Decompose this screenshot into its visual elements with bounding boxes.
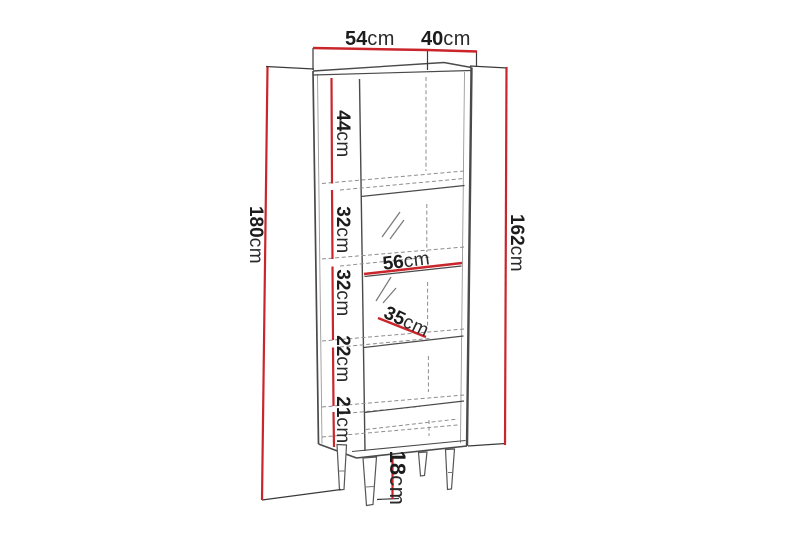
shelf-1-hidden-edges [322,171,464,190]
leg-front-right [446,449,455,490]
cabinet-inner-left-upright [360,79,366,451]
label-top-width-unit: cm [367,28,395,50]
label-compartment-4: 22cm [332,335,353,382]
label-overall-height-num: 180 [245,206,266,238]
cabinet-right-inner-edge [461,72,465,443]
label-compartment-2: 32cm [332,206,353,253]
label-leg-height-num: 18 [385,451,410,475]
label-body-height-unit: cm [506,246,527,272]
ext-body-top [470,66,508,68]
cabinet-right-edge [467,68,472,447]
glass-mark-upper-icon [382,212,404,239]
label-leg-height: 18cm [385,451,410,506]
label-overall-height: 180cm [245,206,266,264]
label-inner-width-unit: cm [402,248,431,272]
label-compartment-2-unit: cm [332,227,353,253]
cabinet-left-edge [313,71,319,444]
cabinet-top-front-edge [314,71,472,76]
label-compartment-1: 44cm [332,110,353,157]
label-compartment-5: 21cm [332,396,353,443]
label-inner-width: 56cm [381,248,431,275]
shelf-4-front-edge [364,401,464,413]
label-compartment-5-unit: cm [332,417,353,443]
dimension-labels: 54cm 40cm 180cm 162cm 44cm 32cm 32cm 22c… [245,28,527,505]
ext-height-bottom [262,490,341,501]
shelf-1-front-edge [361,186,465,197]
cabinet-diagram-svg: 54cm 40cm 180cm 162cm 44cm 32cm 32cm 22c… [0,0,800,533]
label-body-height-num: 162 [506,214,527,246]
cabinet-top-back-edge [313,63,472,72]
label-top-width: 54cm [345,28,395,50]
label-compartment-5-num: 21 [332,396,353,418]
label-overall-height-unit: cm [245,238,266,264]
leg-back-right [419,452,428,476]
label-body-height: 162cm [506,214,527,272]
label-compartment-4-num: 22 [332,335,353,356]
label-top-depth: 40cm [421,28,471,50]
label-compartment-4-unit: cm [332,356,353,382]
leg-back-left [337,445,347,491]
label-top-width-num: 54 [345,28,368,50]
shelf-3-front-edge [364,336,464,348]
label-top-depth-unit: cm [443,28,471,50]
ext-height-top [266,67,314,70]
furniture-dimension-diagram: 54cm 40cm 180cm 162cm 44cm 32cm 32cm 22c… [0,0,800,533]
label-compartment-2-num: 32 [332,206,353,227]
label-compartment-1-num: 44 [332,110,353,132]
label-leg-height-unit: cm [385,475,410,505]
label-compartment-3-unit: cm [332,290,353,316]
ext-body-bottom [468,444,506,447]
leg-front-left [363,457,377,506]
dim-line-overall-height [262,67,268,500]
label-compartment-1-unit: cm [332,131,353,157]
label-inner-width-num: 56 [381,251,405,274]
label-top-depth-num: 40 [421,28,443,50]
label-compartment-3-num: 32 [332,269,353,290]
label-compartment-3: 32cm [332,269,353,316]
leg-front-left-joint [365,487,374,488]
glass-mark-lower-icon [376,277,396,303]
